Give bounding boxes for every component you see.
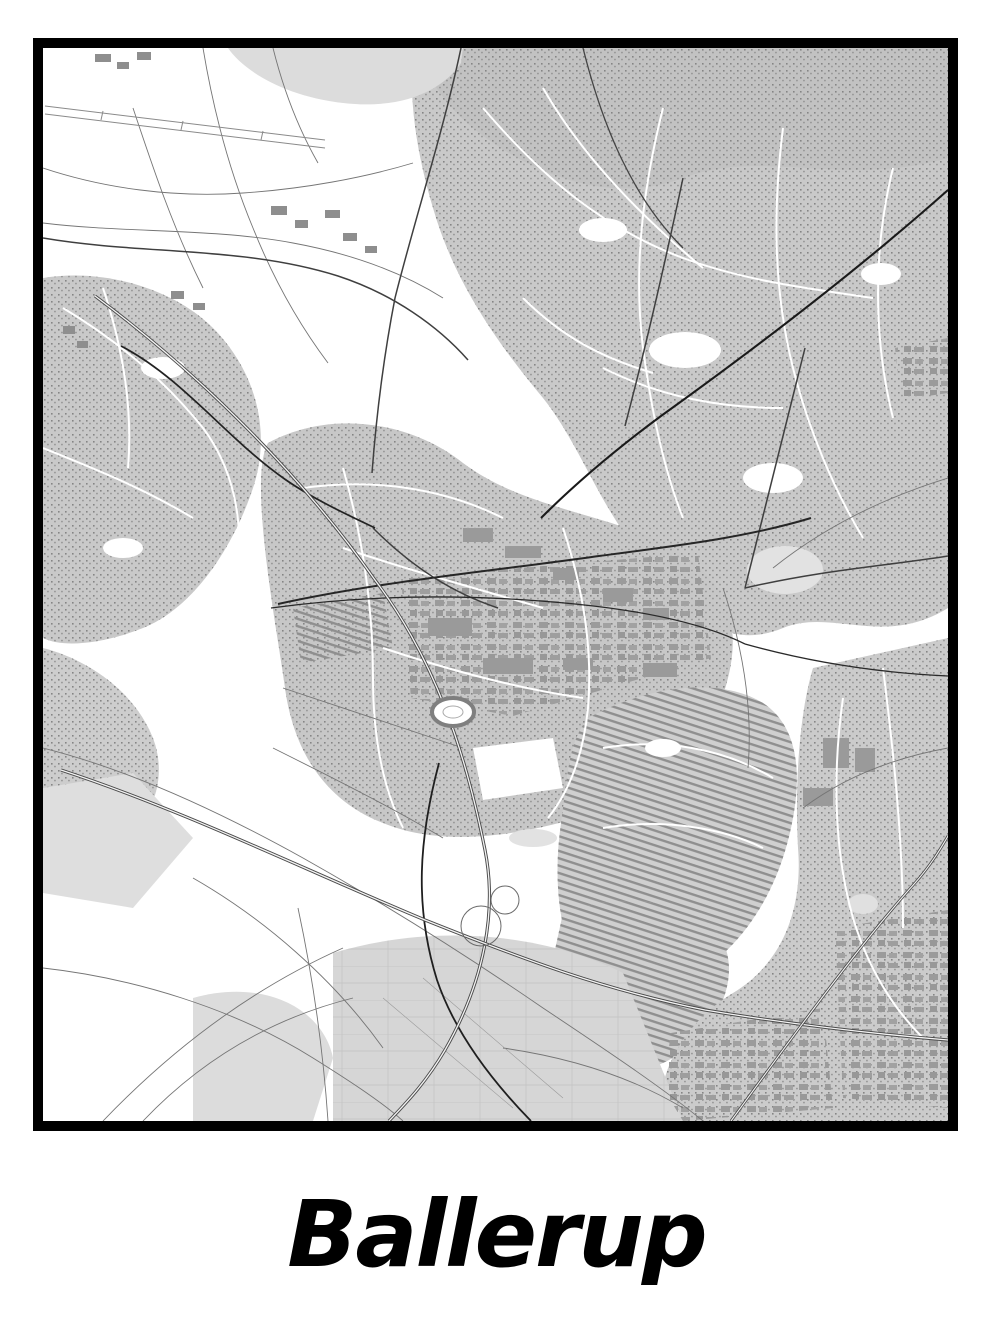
commercial-blocks-east: [835, 910, 948, 1108]
map-poster: Ballerup: [0, 0, 993, 1337]
map-frame: [33, 38, 958, 1131]
city-map-graphic: [43, 48, 948, 1121]
pond-center: [509, 829, 557, 847]
poster-title: Ballerup: [0, 1131, 993, 1337]
pond-south-east: [848, 894, 878, 914]
pond-east: [747, 546, 823, 594]
stadium-oval: [432, 698, 474, 726]
